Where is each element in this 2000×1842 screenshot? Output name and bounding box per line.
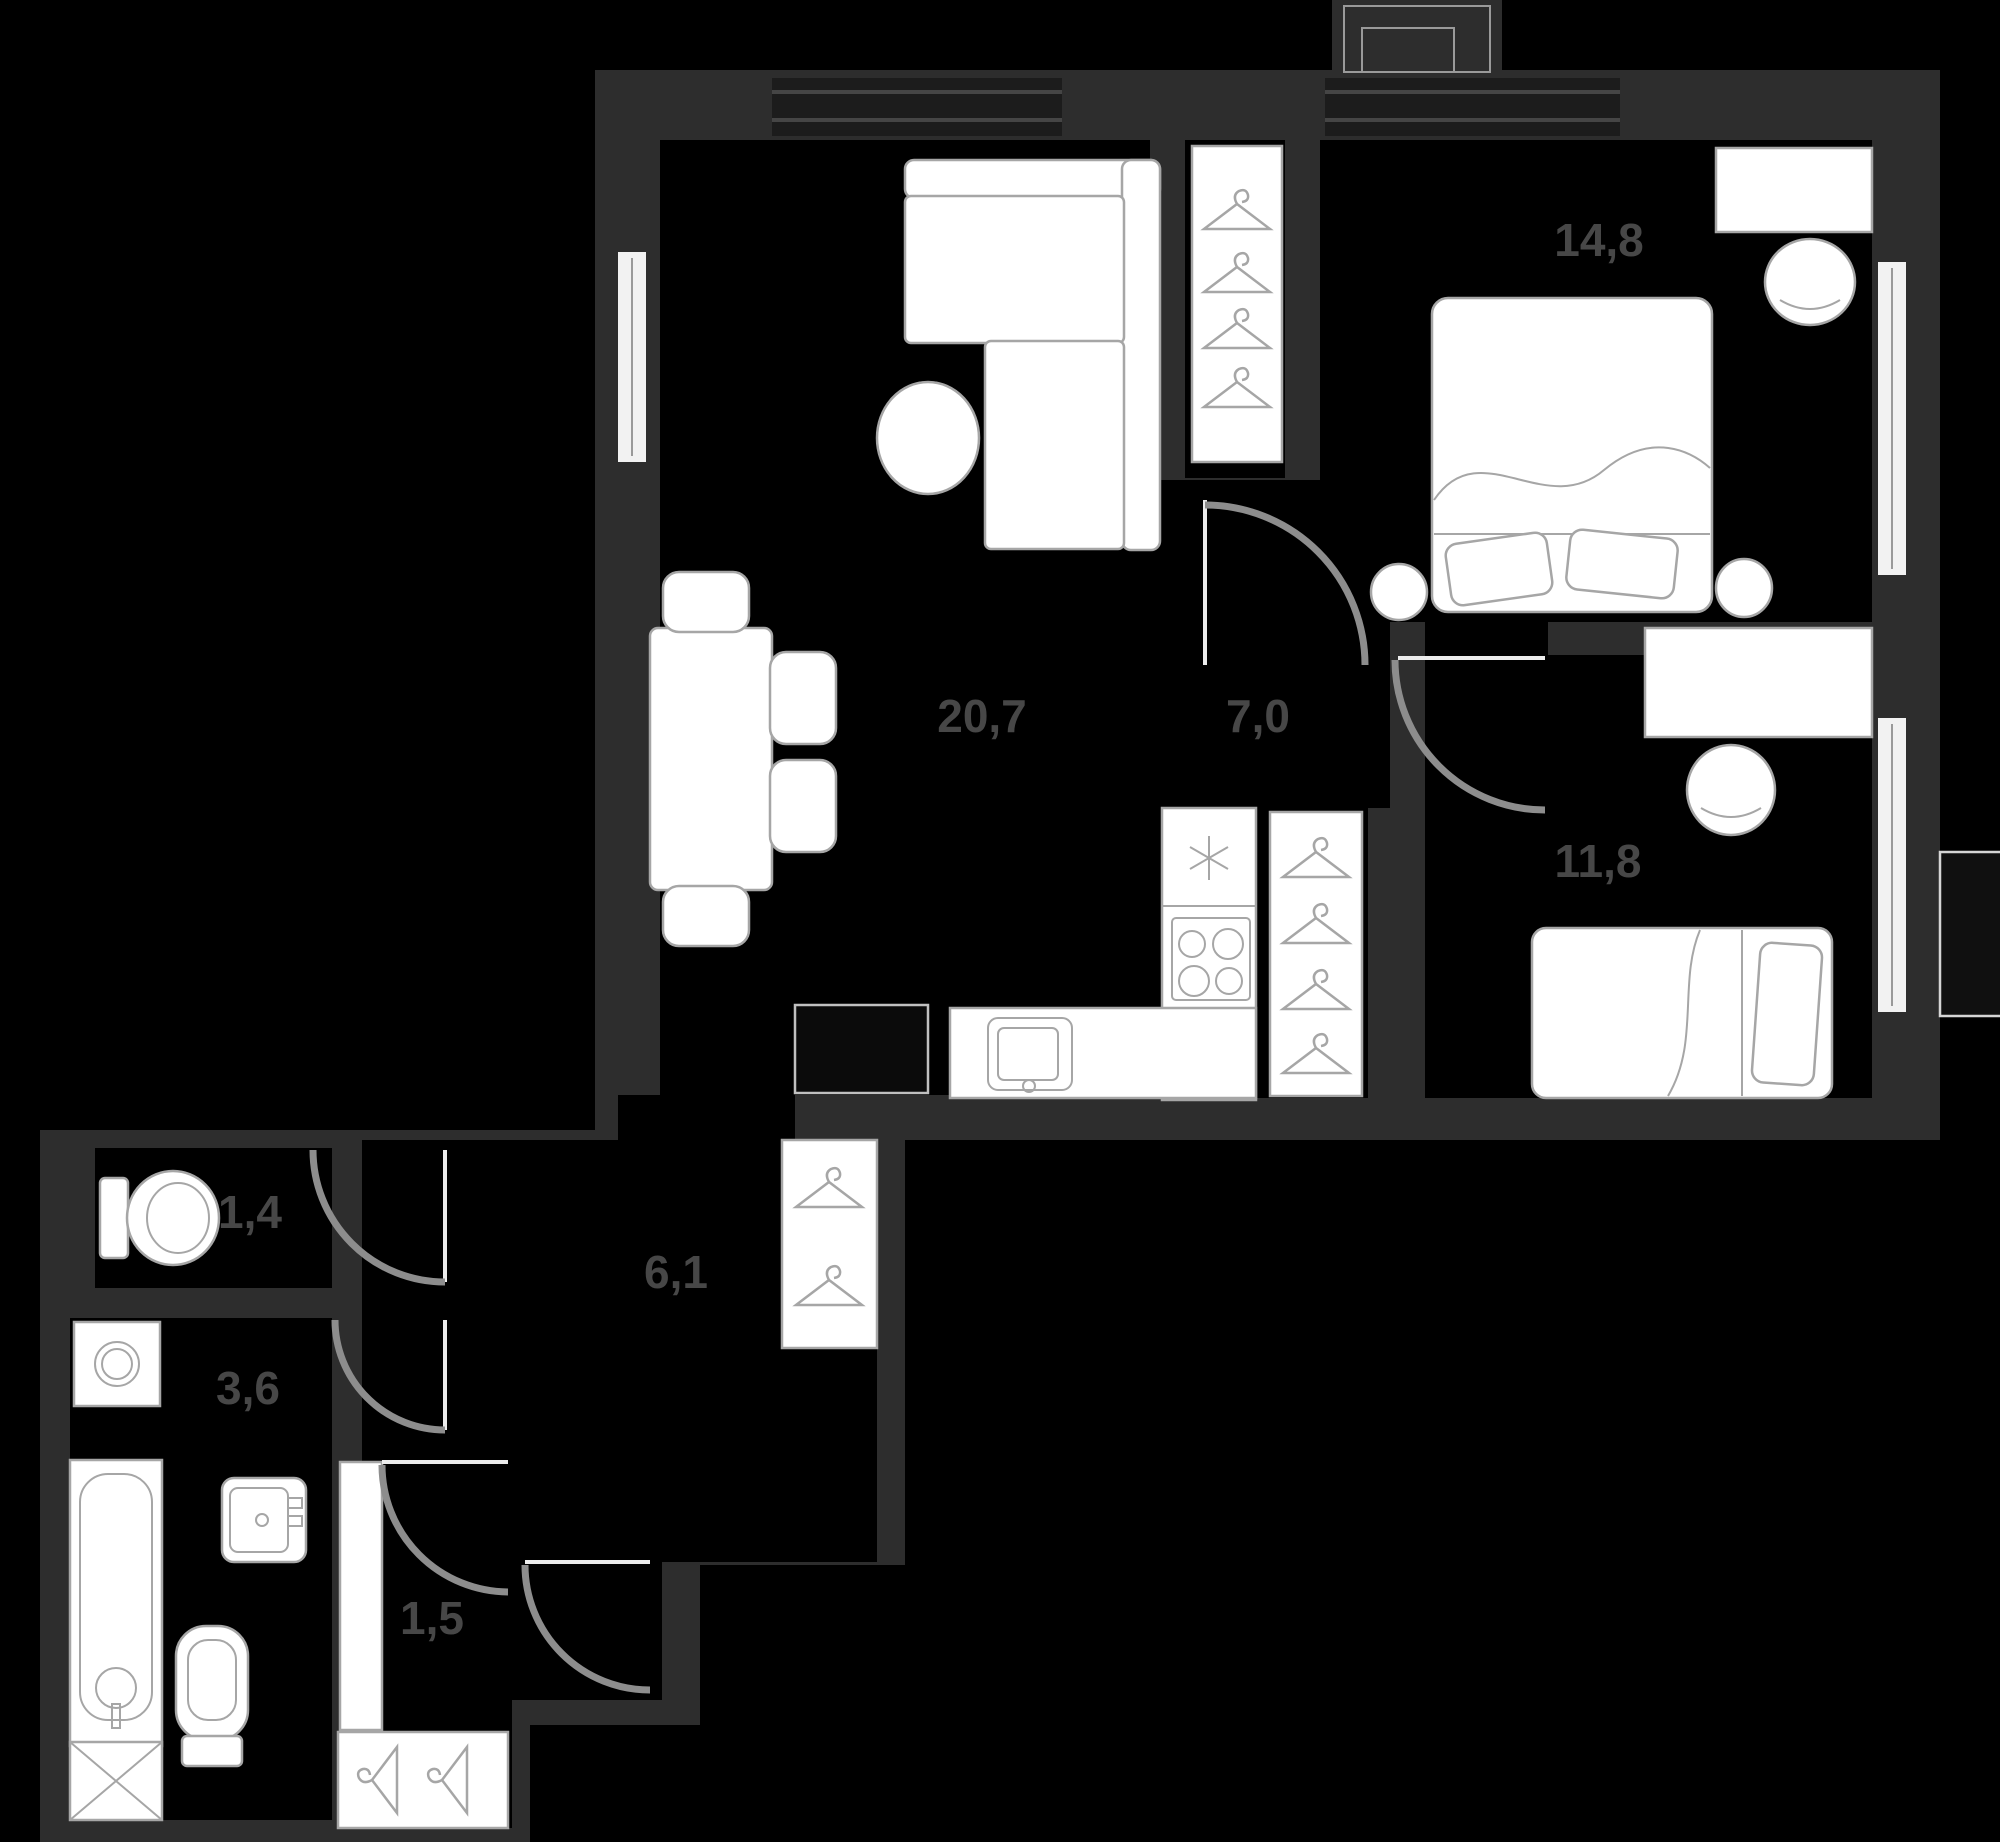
toilet-icon: [127, 1171, 219, 1265]
top-balcony-shaft: [1332, 0, 1502, 78]
nightstand-icon: [1371, 564, 1427, 620]
sink-icon: [222, 1478, 306, 1562]
desk-chair-icon: [1687, 745, 1775, 835]
wardrobe-icon: [1270, 812, 1362, 1096]
desk-icon: [1716, 148, 1872, 232]
floor-plan-svg: 20,7 7,0 14,8 11,8 6,1 1,4 3,6 1,5: [0, 0, 2000, 1842]
pillow-icon: [1565, 529, 1679, 600]
washing-machine-icon: [74, 1322, 160, 1406]
living-kitchen-area-label: 20,7: [937, 690, 1027, 742]
hall-closet: [1192, 146, 1282, 462]
shelf-unit-icon: [340, 1462, 382, 1730]
desk-icon: [1645, 628, 1872, 737]
kitchen-counter: [950, 1008, 1256, 1098]
chair-icon: [770, 760, 836, 852]
right-balcony-shaft: [1940, 852, 2000, 1016]
chair-icon: [663, 886, 749, 946]
toilet-tank: [182, 1736, 242, 1766]
sofa-icon: [985, 341, 1124, 549]
chair-icon: [770, 652, 836, 744]
toilet-icon: [176, 1626, 248, 1740]
coffee-table-icon: [877, 382, 979, 494]
bathroom-area-label: 3,6: [216, 1362, 280, 1414]
wardrobe-icon: [338, 1732, 508, 1828]
bedroom-2-door-opening: [1425, 622, 1548, 655]
sofa-icon: [905, 196, 1124, 343]
toilet-tank: [100, 1178, 128, 1258]
corridor-area-label: 6,1: [644, 1246, 708, 1298]
pillow-icon: [1751, 942, 1823, 1086]
living-corridor-opening: [618, 1095, 795, 1142]
hallway-area-label: 7,0: [1226, 690, 1290, 742]
appliance-box: [795, 1005, 928, 1093]
window-symbol: [772, 78, 1062, 136]
bedroom-1-area-label: 14,8: [1554, 214, 1644, 266]
bedroom-1-door-opening: [1285, 498, 1320, 622]
closet-area-label: 1,5: [400, 1592, 464, 1644]
chair-icon: [663, 572, 749, 632]
dining-table-icon: [650, 628, 772, 890]
nightstand-icon: [1716, 559, 1772, 617]
desk-chair-icon: [1765, 239, 1855, 325]
pillow-icon: [1444, 531, 1554, 607]
bedroom-2-area-label: 11,8: [1555, 835, 1642, 887]
corridor-furniture: [782, 1140, 877, 1348]
wc-area-label: 1,4: [218, 1186, 282, 1238]
floor-plan: 20,7 7,0 14,8 11,8 6,1 1,4 3,6 1,5: [0, 0, 2000, 1842]
wc-fixtures: [100, 1171, 219, 1265]
sofa-icon: [1122, 160, 1160, 550]
window-symbol: [1325, 78, 1620, 136]
